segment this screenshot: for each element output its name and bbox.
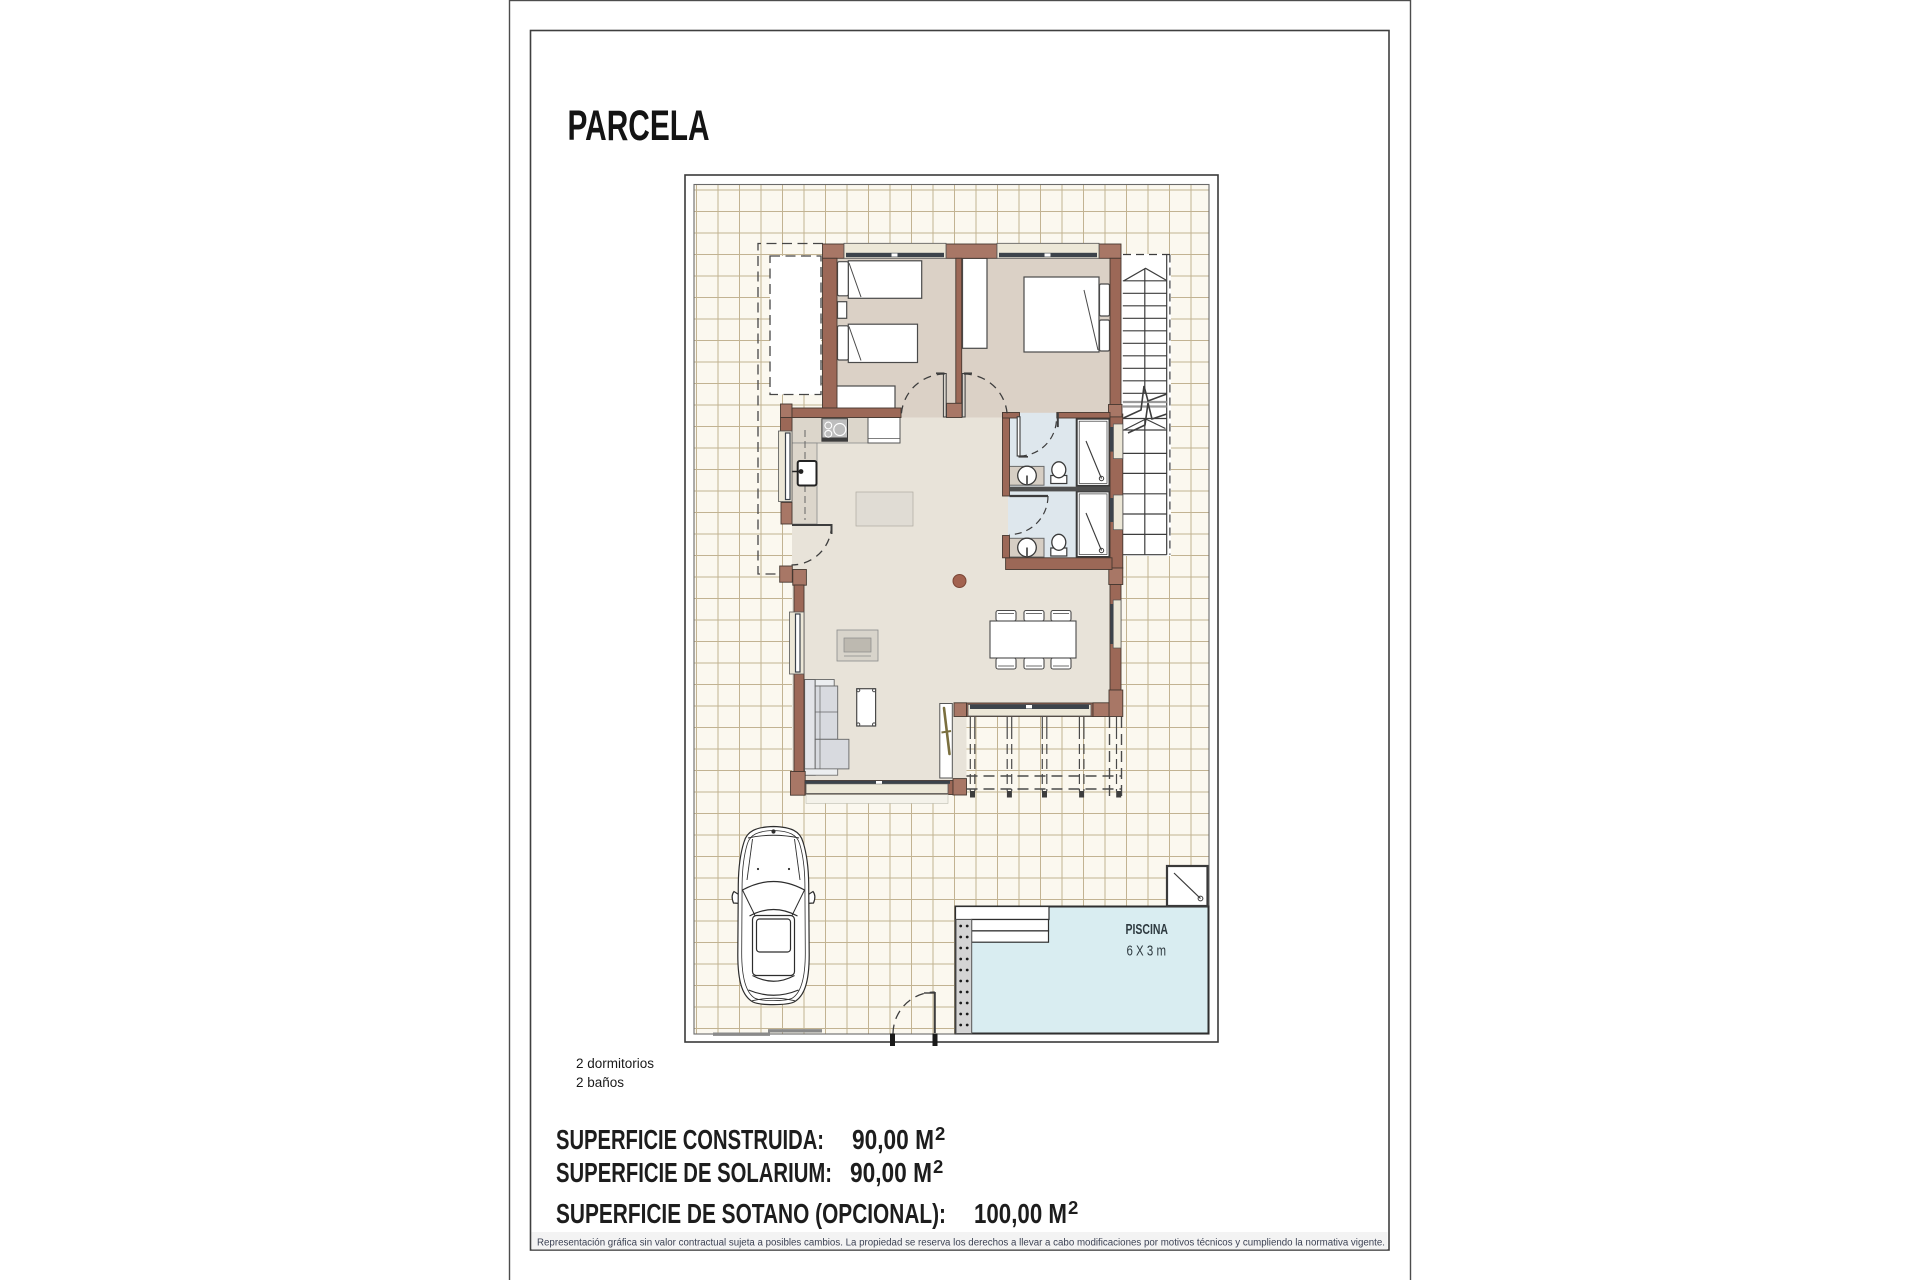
svg-text:90,00 M: 90,00 M — [852, 1124, 934, 1155]
svg-text:2: 2 — [933, 1156, 943, 1177]
svg-text:2 baños: 2 baños — [576, 1075, 624, 1090]
svg-text:SUPERFICIE DE SOLARIUM:: SUPERFICIE DE SOLARIUM: — [556, 1157, 832, 1188]
svg-text:90,00 M: 90,00 M — [850, 1157, 932, 1188]
svg-text:2: 2 — [935, 1123, 945, 1144]
svg-text:PISCINA: PISCINA — [1126, 922, 1169, 938]
svg-text:6 X 3 m: 6 X 3 m — [1127, 944, 1167, 960]
svg-text:SUPERFICIE CONSTRUIDA:: SUPERFICIE CONSTRUIDA: — [556, 1124, 824, 1155]
svg-text:100,00 M: 100,00 M — [974, 1198, 1067, 1229]
svg-text:Representación gráfica sin val: Representación gráfica sin valor contrac… — [537, 1238, 1385, 1249]
svg-text:PARCELA: PARCELA — [568, 102, 710, 150]
svg-text:2: 2 — [1068, 1197, 1078, 1218]
svg-text:SUPERFICIE DE SOTANO (OPCIONAL: SUPERFICIE DE SOTANO (OPCIONAL): — [556, 1198, 946, 1229]
svg-text:2 dormitorios: 2 dormitorios — [576, 1056, 654, 1071]
